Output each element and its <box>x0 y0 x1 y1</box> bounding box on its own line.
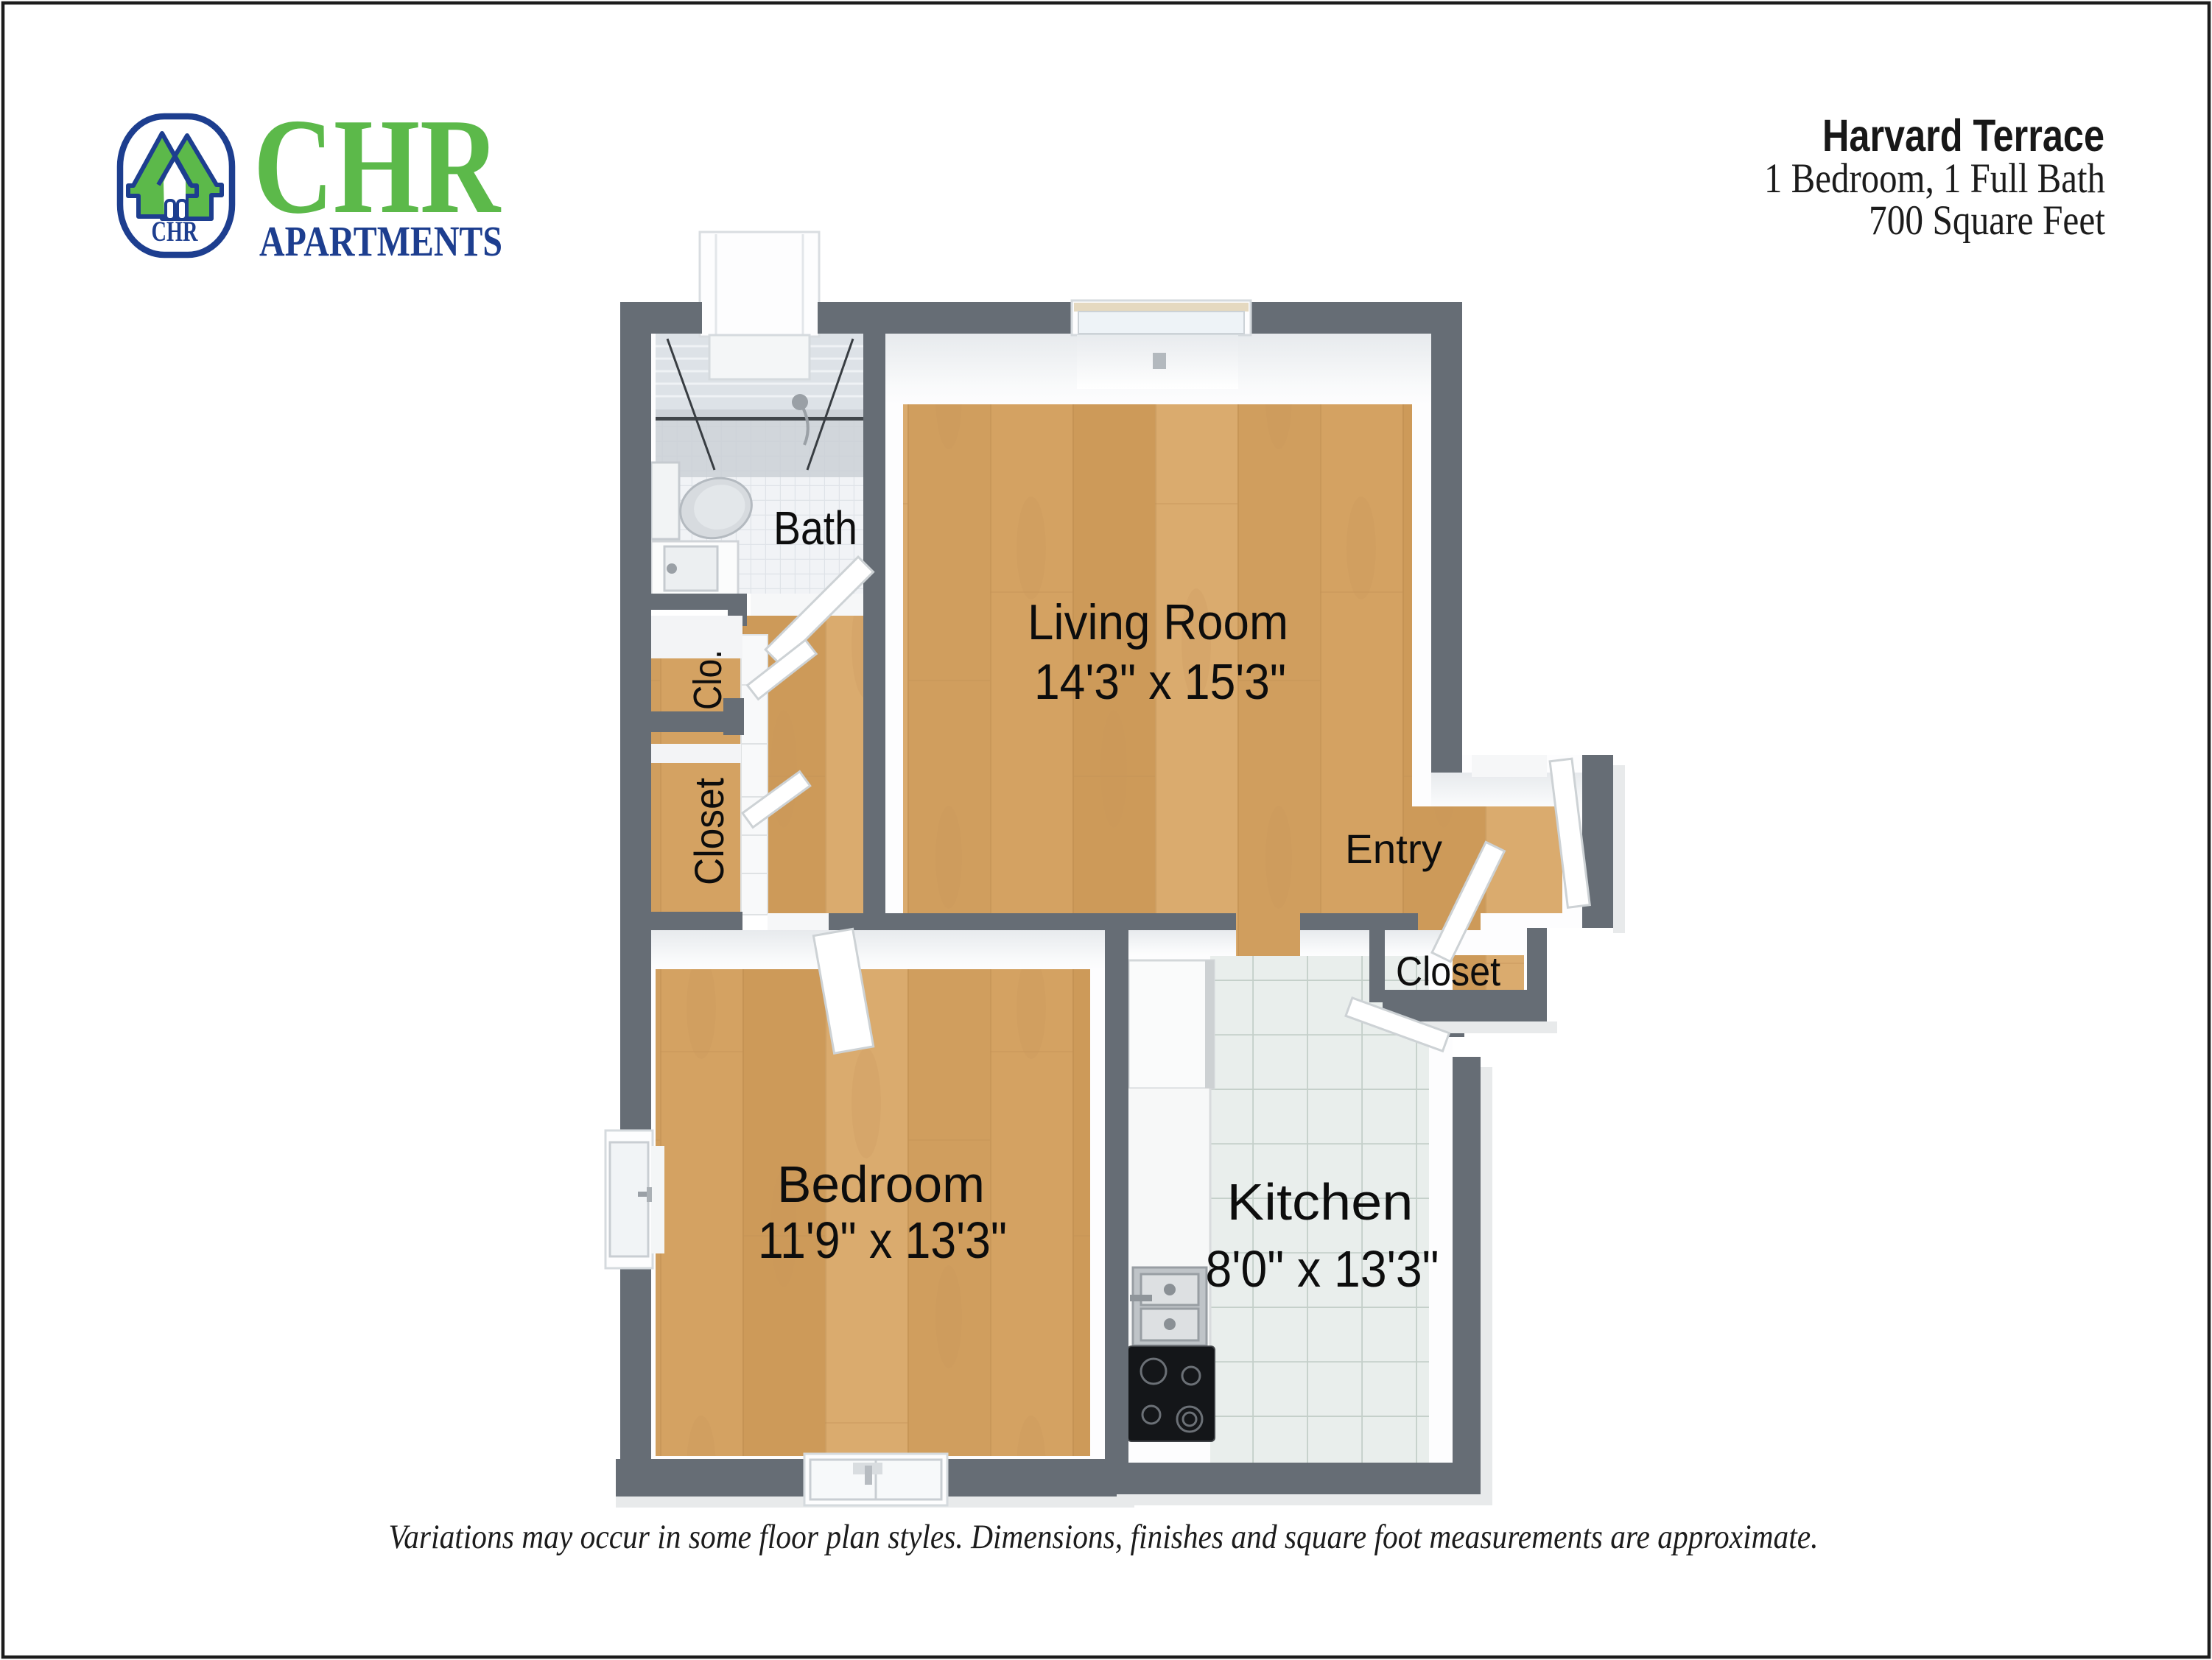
svg-text:14'3" x 15'3": 14'3" x 15'3" <box>1034 654 1286 710</box>
svg-text:11'9" x 13'3": 11'9" x 13'3" <box>758 1211 1007 1269</box>
svg-text:8'0" x 13'3": 8'0" x 13'3" <box>1206 1240 1439 1298</box>
svg-text:Living Room: Living Room <box>1028 594 1288 650</box>
svg-text:Entry: Entry <box>1345 826 1442 872</box>
svg-text:Variations may occur in some f: Variations may occur in some floor plan … <box>389 1518 1819 1556</box>
svg-text:Harvard Terrace: Harvard Terrace <box>1822 110 2104 161</box>
svg-text:Kitchen: Kitchen <box>1227 1173 1414 1231</box>
svg-text:APARTMENTS: APARTMENTS <box>259 217 502 265</box>
svg-text:Closet: Closet <box>1396 948 1500 994</box>
svg-text:Bedroom: Bedroom <box>777 1156 985 1213</box>
svg-text:Closet: Closet <box>686 778 732 885</box>
svg-text:1 Bedroom, 1 Full Bath: 1 Bedroom, 1 Full Bath <box>1764 155 2105 202</box>
svg-text:700 Square Feet: 700 Square Feet <box>1869 197 2105 244</box>
svg-text:Clo.: Clo. <box>686 650 730 710</box>
svg-text:Bath: Bath <box>773 502 857 555</box>
svg-text:CHR: CHR <box>152 216 199 247</box>
